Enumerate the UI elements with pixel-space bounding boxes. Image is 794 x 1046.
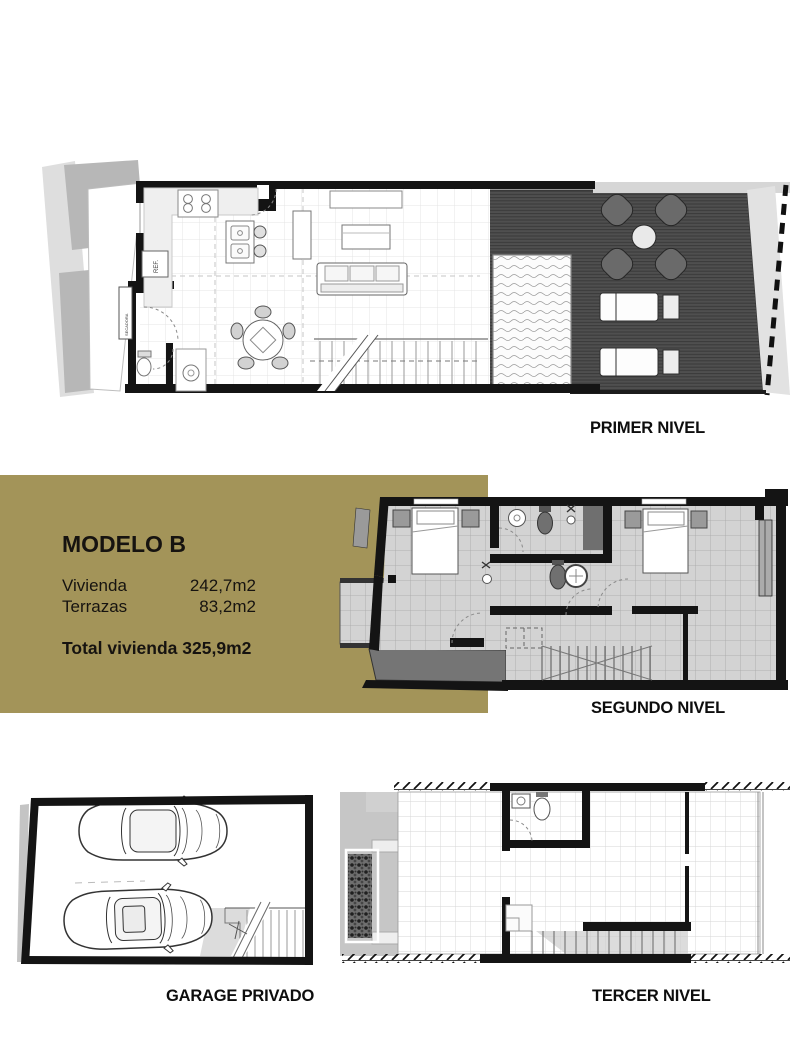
model-info-text: MODELO B Vivienda 242,7m2 Terrazas 83,2m… xyxy=(62,531,256,659)
segundo-nivel-label: SEGUNDO NIVEL xyxy=(591,698,725,718)
planter-vegetation xyxy=(348,854,372,938)
duct-column xyxy=(583,506,603,550)
area-value: 83,2m2 xyxy=(174,596,256,617)
sink-icon xyxy=(183,365,199,381)
tercer-nivel-floorplan xyxy=(336,772,794,972)
laundry-label: SECADORA xyxy=(124,313,129,336)
refrigerator: REF. xyxy=(142,251,168,277)
garage-label: GARAGE PRIVADO xyxy=(166,986,314,1006)
area-row-vivienda: Vivienda 242,7m2 xyxy=(62,575,256,596)
water-feature xyxy=(493,255,571,390)
round-table xyxy=(632,225,656,249)
model-title: MODELO B xyxy=(62,531,256,558)
sink-icon xyxy=(509,510,526,527)
total-value: 325,9m2 xyxy=(182,638,251,658)
toilet-icon xyxy=(137,358,151,376)
car-1 xyxy=(79,796,227,866)
terrace-floor xyxy=(398,792,760,954)
toilet-icon xyxy=(538,512,553,534)
segundo-nivel-floorplan xyxy=(336,476,794,716)
wall-niche xyxy=(257,185,269,199)
window xyxy=(136,203,144,233)
island-sink xyxy=(226,221,254,263)
lower-roof xyxy=(369,649,506,682)
area-row-terrazas: Terrazas 83,2m2 xyxy=(62,596,256,617)
fridge-label: REF. xyxy=(154,260,160,273)
total-area: Total vivienda 325,9m2 xyxy=(62,638,256,659)
sofa xyxy=(317,263,407,295)
toilet-icon xyxy=(550,565,566,589)
primer-nivel-floorplan: REF. SECADORA xyxy=(30,155,790,405)
primer-nivel-label: PRIMER NIVEL xyxy=(590,418,705,438)
neighbor-structure xyxy=(42,160,142,397)
area-label: Vivienda xyxy=(62,575,174,596)
area-value: 242,7m2 xyxy=(174,575,256,596)
tercer-nivel-label: TERCER NIVEL xyxy=(592,986,711,1006)
brochure-page: MODELO B Vivienda 242,7m2 Terrazas 83,2m… xyxy=(0,0,794,1046)
total-label: Total vivienda xyxy=(62,638,177,658)
area-label: Terrazas xyxy=(62,596,174,617)
stove-icon xyxy=(178,190,218,217)
laundry-closet: SECADORA xyxy=(119,287,132,339)
garage-floorplan xyxy=(15,790,345,975)
toilet-icon xyxy=(534,798,550,820)
